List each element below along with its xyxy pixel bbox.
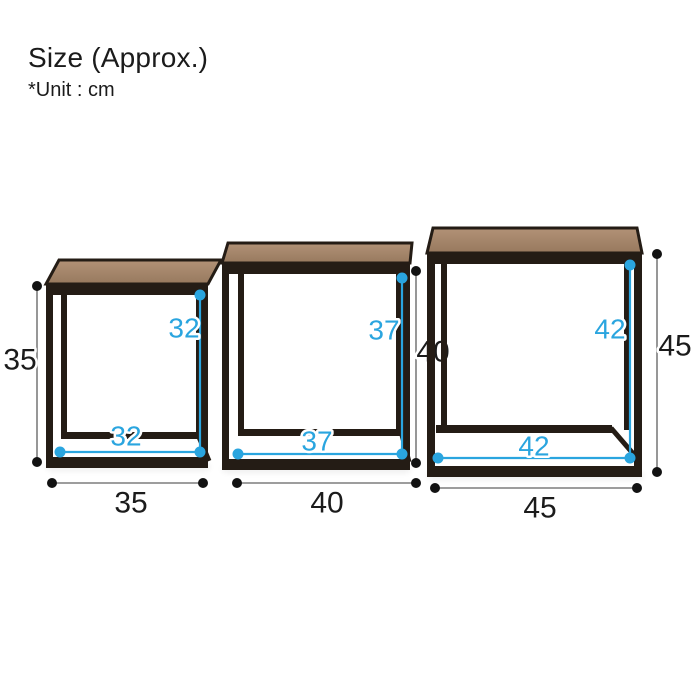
large-outer-height-top-dot — [652, 249, 662, 259]
table-large-bottom-rail — [427, 466, 642, 477]
large-outer-height-label: 45 — [658, 330, 691, 363]
table-small-top-rail — [46, 284, 208, 295]
table-medium-top-rail — [222, 263, 410, 274]
table-large-outer-measurements: 45 45 — [430, 249, 692, 525]
table-large-tabletop — [427, 228, 642, 253]
medium-outer-height-top-dot — [411, 266, 421, 276]
table-large-back-left-leg — [441, 262, 447, 430]
medium-outer-width-left-dot — [232, 478, 242, 488]
large-outer-width-right-dot — [632, 483, 642, 493]
medium-outer-height-bottom-dot — [411, 458, 421, 468]
medium-outer-width-label: 40 — [310, 487, 343, 520]
table-large-side-base-edge — [611, 428, 636, 457]
large-inner-height-top-dot — [625, 260, 636, 271]
small-inner-height-label: 32 — [168, 313, 199, 344]
large-outer-width-left-dot — [430, 483, 440, 493]
medium-inner-width-left-dot — [233, 449, 244, 460]
medium-inner-height-label: 37 — [368, 315, 399, 346]
large-inner-corner-dot — [625, 453, 636, 464]
table-small-back-left-leg — [61, 293, 67, 439]
table-large-top-rail — [427, 253, 642, 264]
table-medium-front-left-leg — [222, 263, 229, 470]
large-inner-width-left-dot — [433, 453, 444, 464]
table-small-front-right-leg — [201, 284, 208, 468]
table-medium-outer-measurements: 40 40 — [232, 266, 450, 520]
table-medium-back-left-leg — [238, 272, 244, 436]
table-small-tabletop — [46, 260, 221, 284]
table-medium-tabletop — [222, 243, 412, 263]
small-inner-height-top-dot — [195, 290, 206, 301]
large-outer-height-bottom-dot — [652, 467, 662, 477]
small-outer-height-bottom-dot — [32, 457, 42, 467]
table-small-bottom-rail — [46, 457, 208, 468]
medium-inner-corner-dot — [397, 449, 408, 460]
large-inner-width-label: 42 — [518, 431, 549, 462]
small-inner-width-label: 32 — [110, 421, 141, 452]
medium-inner-height-top-dot — [397, 273, 408, 284]
table-small-front-left-leg — [46, 284, 53, 468]
table-medium-bottom-rail — [222, 459, 410, 470]
small-outer-height-label: 35 — [3, 344, 36, 377]
small-inner-width-left-dot — [55, 447, 66, 458]
small-inner-corner-dot — [195, 447, 206, 458]
small-outer-width-label: 35 — [114, 487, 147, 520]
table-medium-front-right-leg — [403, 263, 410, 470]
size-diagram-page: Size (Approx.) *Unit : cm — [0, 0, 700, 700]
medium-outer-width-right-dot — [411, 478, 421, 488]
medium-inner-width-label: 37 — [301, 426, 332, 457]
small-outer-height-top-dot — [32, 281, 42, 291]
table-large-front-left-leg — [427, 253, 435, 477]
small-outer-width-left-dot — [47, 478, 57, 488]
large-outer-width-label: 45 — [523, 492, 556, 525]
small-outer-width-right-dot — [198, 478, 208, 488]
large-inner-height-label: 42 — [594, 314, 625, 345]
table-large-front-right-leg — [634, 253, 642, 477]
nesting-tables-dimension-diagram: 32 32 35 35 — [0, 0, 700, 700]
